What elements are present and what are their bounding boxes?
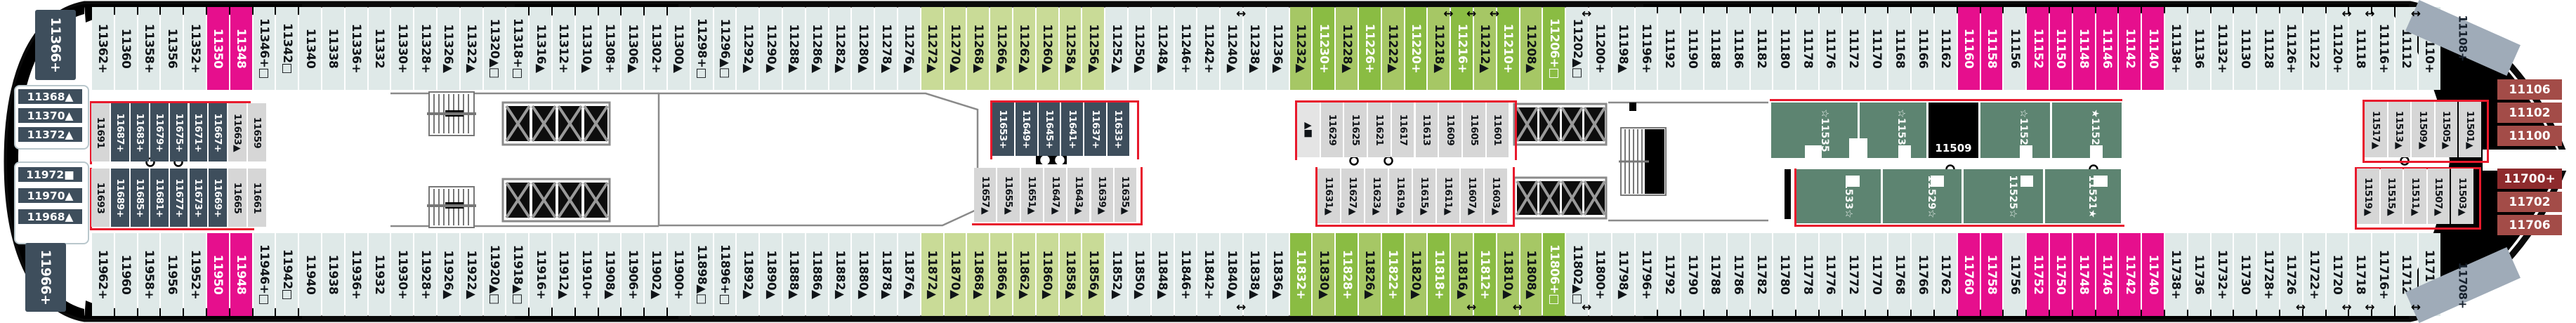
connecting-cabins-icon: ↔	[1513, 302, 1523, 314]
cabin-11870[interactable]: 11870▲	[945, 233, 966, 316]
cabin-11798[interactable]: 11798▲	[1612, 233, 1634, 316]
cabin-11158[interactable]: 11158	[1981, 7, 2003, 90]
connecting-cabins-icon: ↔	[1466, 302, 1476, 314]
cabin-11892[interactable]: 11892▲	[737, 233, 758, 316]
cabin-11348[interactable]: 11348	[230, 7, 252, 90]
cabin-11926[interactable]: 11926▲	[438, 233, 459, 316]
cabin-11641[interactable]: 11641+	[1061, 103, 1083, 156]
cabin-11511[interactable]: 11511▲	[2404, 169, 2426, 224]
cabin-11685[interactable]: 11685+	[131, 169, 149, 227]
cabin-11675[interactable]: 11675+	[170, 103, 188, 161]
cabin-11679[interactable]: 11679+	[150, 103, 169, 161]
cabin-11880[interactable]: 11880▲	[852, 233, 874, 316]
cabin-11278[interactable]: 11278▲	[875, 7, 897, 90]
cabin-11605[interactable]: 11605	[1463, 103, 1485, 157]
cabin-11370[interactable]: 11370▲	[18, 108, 82, 123]
cabin-11146[interactable]: 11146	[2096, 7, 2118, 90]
cabin-11286[interactable]: 11286▲	[806, 7, 828, 90]
cabin-11635[interactable]: 11635▲	[1115, 168, 1136, 222]
cabin-11768[interactable]: 11768	[1888, 233, 1910, 316]
cabin-11918[interactable]: 11918▲□	[506, 233, 528, 316]
cabin-11166[interactable]: 11166	[1912, 7, 1933, 90]
cabin-11613[interactable]: 11613	[1416, 103, 1438, 157]
cabin-11190[interactable]: 11190	[1681, 7, 1703, 90]
cabin-11170[interactable]: 11170	[1866, 7, 1888, 90]
cabin-11266[interactable]: 11266▲	[990, 7, 1012, 90]
connecting-cabins-icon: ↔	[1236, 8, 1246, 20]
cabin-11182[interactable]: 11182	[1751, 7, 1773, 90]
cabin-11836[interactable]: 11836▲	[1267, 233, 1289, 316]
cabin-11946[interactable]: 11946+□	[254, 233, 275, 316]
cabin-11617[interactable]: 11617	[1392, 103, 1414, 157]
cabin-11228[interactable]: 11228▲	[1336, 7, 1358, 90]
cabin-11160[interactable]: 11160	[1958, 7, 1980, 90]
cabin-11732[interactable]: 11732+	[2212, 233, 2233, 316]
cabin-11619[interactable]: 11619▲	[1389, 169, 1412, 223]
cabin-11625[interactable]: 11625	[1344, 103, 1367, 157]
cabin-11738[interactable]: 11738+	[2165, 233, 2187, 316]
suite-11529[interactable]: 11529☆	[1883, 169, 1961, 223]
connecting-cabins-icon: ↔	[1582, 302, 1591, 314]
cabin-11615[interactable]: 11615▲	[1413, 169, 1435, 223]
cabin-11260[interactable]: 11260▲	[1037, 7, 1058, 90]
cabin-11669[interactable]: 11669+	[209, 169, 227, 227]
cabin-11282[interactable]: 11282▲	[829, 7, 851, 90]
cabin-11168[interactable]: 11168	[1888, 7, 1910, 90]
cabin-11878[interactable]: 11878▲	[875, 233, 897, 316]
cabin-11842[interactable]: 11842+	[1197, 233, 1219, 316]
cabin-11786[interactable]: 11786	[1728, 233, 1749, 316]
cabin-11130[interactable]: 11130	[2234, 7, 2256, 90]
suite-11531[interactable]: ☆11531	[1860, 103, 1926, 158]
cabin-11649[interactable]: 11649+	[1016, 103, 1037, 156]
cabin-11326[interactable]: 11326▲	[438, 7, 459, 90]
cabin-11922[interactable]: 11922▲	[461, 233, 482, 316]
cabin-11846[interactable]: 11846+	[1175, 233, 1197, 316]
cabin-11226[interactable]: 11226+	[1359, 7, 1381, 90]
cabin-11603[interactable]: 11603▲	[1485, 169, 1507, 223]
cabin-11136[interactable]: 11136	[2188, 7, 2210, 90]
cabin-11372[interactable]: 11372▲	[18, 127, 82, 142]
suite-11527[interactable]: ☆11527	[1980, 103, 2050, 158]
cabin-11637[interactable]: 11637+	[1084, 103, 1106, 156]
cabin-11858[interactable]: 11858▲	[1060, 233, 1082, 316]
cabin-11950[interactable]: 11950	[207, 233, 229, 316]
connecting-cabins-icon: ↔	[2411, 302, 2421, 314]
cabin-11808[interactable]: 11808▲	[1520, 233, 1542, 316]
elevator-bank-icon	[1514, 178, 1606, 218]
cabin-11760[interactable]: 11760	[1958, 233, 1980, 316]
cabin-11501[interactable]: 11501▲	[2459, 102, 2481, 157]
cabin-11252[interactable]: 11252▲	[1105, 7, 1127, 90]
cabin-11100[interactable]: 11100	[2497, 126, 2562, 146]
cabin-11172[interactable]: 11172	[1843, 7, 1865, 90]
cabin-11300[interactable]: 11300▲	[668, 7, 690, 90]
cabin-11366[interactable]: 11366+	[35, 10, 76, 80]
cabin-11683[interactable]: 11683+	[131, 103, 149, 161]
cabin-11916[interactable]: 11916+	[530, 233, 551, 316]
cabin-11766[interactable]: 11766	[1912, 233, 1933, 316]
cabin-11208[interactable]: 11208▲	[1520, 7, 1542, 90]
cabin-11866[interactable]: 11866▲	[990, 233, 1012, 316]
cabin-11270[interactable]: 11270▲	[945, 7, 966, 90]
cabin-11890[interactable]: 11890▲	[760, 233, 782, 316]
cabin-11700[interactable]: 11700+	[2497, 169, 2562, 189]
cabin-11962[interactable]: 11962+	[92, 233, 114, 316]
cabin-11960[interactable]: 11960	[115, 233, 137, 316]
cabin-11788[interactable]: 11788	[1704, 233, 1726, 316]
cabin-11138[interactable]: 11138+	[2165, 7, 2187, 90]
cabin-11702[interactable]: 11702	[2497, 192, 2562, 212]
cabin-11748[interactable]: 11748	[2073, 233, 2095, 316]
cabin-11132[interactable]: 11132+	[2212, 7, 2233, 90]
cabin-11762[interactable]: 11762	[1935, 233, 1957, 316]
cabin-11756[interactable]: 11756	[2004, 233, 2025, 316]
cabin-11178[interactable]: 11178	[1796, 7, 1818, 90]
cabin-11930[interactable]: 11930+	[391, 233, 413, 316]
connecting-cabins-icon: ↔	[1582, 8, 1591, 20]
cabin-11645[interactable]: 11645+	[1039, 103, 1060, 156]
cabin-11687[interactable]: 11687+	[111, 103, 129, 161]
connecting-cabins-icon: ↔	[1236, 302, 1246, 314]
cabin-11659[interactable]: 11659	[248, 103, 266, 161]
cabin-11778[interactable]: 11778	[1796, 233, 1818, 316]
connecting-cabins-icon: ↔	[2411, 8, 2421, 20]
stairs-icon	[427, 92, 476, 136]
cabin-11342[interactable]: 11342□	[276, 7, 298, 90]
cabin-11352[interactable]: 11352+	[184, 7, 206, 90]
cabin-11896[interactable]: 11896+□	[714, 233, 736, 316]
cabin-11330[interactable]: 11330+	[391, 7, 413, 90]
cabin-11948[interactable]: 11948	[230, 233, 252, 316]
cabin-11667[interactable]: 11667+	[209, 103, 227, 161]
cabin-11222[interactable]: 11222▲	[1382, 7, 1404, 90]
cabin-11230[interactable]: 11230+	[1313, 7, 1334, 90]
cabin-11671[interactable]: 11671+	[190, 103, 208, 161]
cabin-11220[interactable]: 11220+	[1405, 7, 1427, 90]
cabin-11236[interactable]: 11236▲	[1267, 7, 1289, 90]
cabin-11519[interactable]: 11519▲	[2357, 169, 2379, 224]
cabin-11280[interactable]: 11280▲	[852, 7, 874, 90]
cabin-11746[interactable]: 11746	[2096, 233, 2118, 316]
cabin-11730[interactable]: 11730	[2234, 233, 2256, 316]
cabin-11776[interactable]: 11776	[1820, 233, 1841, 316]
connecting-cabins-icon: ↔	[1466, 8, 1476, 20]
cabin-11828[interactable]: 11828+	[1336, 233, 1358, 316]
stairs-icon	[1619, 128, 1666, 195]
suite-balcony-notch	[1898, 145, 1911, 164]
suite-balcony-notch	[2020, 176, 2033, 187]
cabin-11507[interactable]: 11507▲	[2428, 169, 2450, 224]
cabin-11308[interactable]: 11308+	[599, 7, 621, 90]
cabin-11296[interactable]: 11296▲□	[714, 7, 736, 90]
cabin-11318[interactable]: 11318+□	[506, 7, 528, 90]
cabin-11246[interactable]: 11246+	[1175, 7, 1197, 90]
cabin-11290[interactable]: 11290▲	[760, 7, 782, 90]
cabin-11758[interactable]: 11758	[1981, 233, 2003, 316]
cabin-11248[interactable]: 11248▲	[1152, 7, 1174, 90]
cabin-11673[interactable]: 11673+	[190, 169, 208, 227]
cabin-11338[interactable]: 11338	[322, 7, 344, 90]
cabin-11722[interactable]: 11722+	[2304, 233, 2325, 316]
cabin-11356[interactable]: 11356	[161, 7, 183, 90]
cabin-11515[interactable]: 11515▲	[2381, 169, 2403, 224]
cabin-11928[interactable]: 11928+	[414, 233, 436, 316]
cabin-11653[interactable]: 11653+	[992, 103, 1014, 156]
cabin-11908[interactable]: 11908▲	[599, 233, 621, 316]
cabin-11912[interactable]: 11912▲	[553, 233, 574, 316]
cabin-11968[interactable]: 11968▲	[18, 209, 82, 224]
cabin-11806[interactable]: 11806+□	[1543, 233, 1565, 316]
cabin-11362[interactable]: 11362+	[92, 7, 114, 90]
cabin-11621[interactable]: 11621	[1368, 103, 1391, 157]
cabin-11368[interactable]: 11368▲	[18, 89, 82, 104]
cabin-11200[interactable]: 11200+	[1589, 7, 1611, 90]
cabin-11142[interactable]: 11142	[2119, 7, 2141, 90]
cabin-11358[interactable]: 11358+	[138, 7, 160, 90]
cabin-11268[interactable]: 11268▲	[967, 7, 989, 90]
cabin-11740[interactable]: 11740	[2142, 233, 2164, 316]
cabin-11122[interactable]: 11122	[2304, 7, 2325, 90]
suite-11523[interactable]: ★11523	[2052, 103, 2122, 158]
cabin-11148[interactable]: 11148	[2073, 7, 2095, 90]
cabin-11302[interactable]: 11302+	[645, 7, 666, 90]
cabin-11681[interactable]: 11681+	[150, 169, 169, 227]
cabin-11250[interactable]: 11250▲	[1129, 7, 1150, 90]
cabin-11938[interactable]: 11938	[322, 233, 344, 316]
cabin-11316[interactable]: 11316▲	[530, 7, 551, 90]
cabin-11196[interactable]: 11196+	[1636, 7, 1657, 90]
cabin-11232[interactable]: 11232▲	[1290, 7, 1312, 90]
cabin-11328[interactable]: 11328+	[414, 7, 436, 90]
cabin-11627[interactable]: 11627▲	[1341, 169, 1364, 223]
cabin-11152[interactable]: 11152	[2027, 7, 2049, 90]
suite-balcony-notch	[1805, 145, 1822, 164]
cabin-11198[interactable]: 11198▲	[1612, 7, 1634, 90]
cabin-11936[interactable]: 11936+	[346, 233, 367, 316]
cabin-11972[interactable]: 11972■	[18, 167, 82, 182]
cabin-11838[interactable]: 11838▲	[1244, 233, 1266, 316]
cabin-11176[interactable]: 11176	[1820, 7, 1841, 90]
cabin-11886[interactable]: 11886▲	[806, 233, 828, 316]
cabin-11772[interactable]: 11772	[1843, 233, 1865, 316]
cabin-11629[interactable]: 11629	[1321, 103, 1343, 157]
cabin-11820[interactable]: 11820▲	[1405, 233, 1427, 316]
connecting-cabins-icon: ↔	[2341, 8, 2351, 20]
cabin-marker: ▲■	[1297, 103, 1320, 157]
cabin-11623[interactable]: 11623▲	[1365, 169, 1388, 223]
cabin-11970[interactable]: 11970▲	[18, 188, 82, 203]
cabin-11186[interactable]: 11186	[1728, 7, 1749, 90]
connecting-cabins-icon: ↔	[1443, 8, 1453, 20]
open-deck-area	[659, 93, 978, 225]
cabin-11856[interactable]: 11856▲	[1082, 233, 1104, 316]
cabin-11657[interactable]: 11657▲	[974, 168, 996, 222]
cabin-11661[interactable]: 11661	[248, 169, 266, 227]
cabin-11910[interactable]: 11910+	[576, 233, 598, 316]
cabin-11150[interactable]: 11150	[2050, 7, 2072, 90]
cabin-11900[interactable]: 11900+	[668, 233, 690, 316]
cabin-11792[interactable]: 11792	[1658, 233, 1680, 316]
cabin-11940[interactable]: 11940	[299, 233, 321, 316]
cabin-11312[interactable]: 11312+	[553, 7, 574, 90]
cabin-11790[interactable]: 11790	[1681, 233, 1703, 316]
cabin-11716[interactable]: 11716+	[2372, 233, 2394, 316]
cabin-11647[interactable]: 11647▲	[1044, 168, 1066, 222]
cabin-11665[interactable]: 11665	[228, 169, 247, 227]
cabin-11509-interior[interactable]: 11509	[1928, 103, 1978, 158]
cabin-11920[interactable]: 11920▲□	[484, 233, 506, 316]
cabin-11611[interactable]: 11611▲	[1437, 169, 1459, 223]
cabin-11210[interactable]: 11210+	[1497, 7, 1519, 90]
cabin-11932[interactable]: 11932	[369, 233, 390, 316]
cabin-11292[interactable]: 11292▲	[737, 7, 758, 90]
cabin-11800[interactable]: 11800+	[1589, 233, 1611, 316]
cabin-11826[interactable]: 11826▲	[1359, 233, 1381, 316]
cabin-11607[interactable]: 11607▲	[1461, 169, 1483, 223]
cabin-11256[interactable]: 11256▲	[1082, 7, 1104, 90]
cabin-11288[interactable]: 11288▲	[783, 7, 805, 90]
cabin-11126[interactable]: 11126+	[2280, 7, 2302, 90]
cabin-11958[interactable]: 11958+	[138, 233, 160, 316]
cabin-11503[interactable]: 11503▲	[2451, 169, 2473, 224]
cabin-11752[interactable]: 11752	[2027, 233, 2049, 316]
cabin-11651[interactable]: 11651▲	[1021, 168, 1043, 222]
cabin-11509[interactable]: 11509▲	[2412, 102, 2434, 157]
cabin-11952[interactable]: 11952+	[184, 233, 206, 316]
cabin-11796[interactable]: 11796+	[1636, 233, 1657, 316]
cabin-11848[interactable]: 11848▲	[1152, 233, 1174, 316]
cabin-11180[interactable]: 11180	[1773, 7, 1795, 90]
cabin-11643[interactable]: 11643▲	[1067, 168, 1089, 222]
cabin-11310[interactable]: 11310▲	[576, 7, 598, 90]
cabin-11876[interactable]: 11876▲	[898, 233, 920, 316]
cabin-11639[interactable]: 11639▲	[1091, 168, 1113, 222]
cabin-11513[interactable]: 11513▲	[2388, 102, 2411, 157]
suite-balcony-notch	[1849, 138, 1867, 164]
cabin-11868[interactable]: 11868▲	[967, 233, 989, 316]
cabin-11336[interactable]: 11336+	[346, 7, 367, 90]
cabin-11689[interactable]: 11689+	[111, 169, 129, 227]
cabin-11192[interactable]: 11192	[1658, 7, 1680, 90]
suite-11533[interactable]: 11533☆	[1796, 169, 1881, 223]
elevator-bank-icon	[503, 179, 610, 221]
cabin-11128[interactable]: 11128	[2257, 7, 2279, 90]
cabin-11360[interactable]: 11360	[115, 7, 137, 90]
cabin-11320[interactable]: 11320▲□	[484, 7, 506, 90]
cabin-11188[interactable]: 11188	[1704, 7, 1726, 90]
cabin-11276[interactable]: 11276▲	[898, 7, 920, 90]
cabin-11116[interactable]: 11116+	[2372, 7, 2394, 90]
cabin-11860[interactable]: 11860▲	[1037, 233, 1058, 316]
cabin-11350[interactable]: 11350	[207, 7, 229, 90]
suite-balcony-notch	[2090, 145, 2103, 164]
cabin-11782[interactable]: 11782	[1751, 233, 1773, 316]
cabin-11242[interactable]: 11242+	[1197, 7, 1219, 90]
cabin-11346[interactable]: 11346+□	[254, 7, 275, 90]
cabin-11812[interactable]: 11812+	[1474, 233, 1496, 316]
cabin-11693[interactable]: 11693	[91, 169, 110, 227]
cabin-11736[interactable]: 11736	[2188, 233, 2210, 316]
cabin-11906[interactable]: 11906+	[622, 233, 643, 316]
deck-plan: 11509 11108+ 11708+ 11366+ 11966+ 11362+…	[0, 0, 2576, 323]
cabin-11850[interactable]: 11850▲	[1129, 233, 1150, 316]
cabin-11206[interactable]: 11206+□	[1543, 7, 1565, 90]
connecting-cabins-icon: ↔	[2365, 8, 2374, 20]
connecting-cabins-icon: ↔	[2296, 302, 2306, 314]
cabin-11742[interactable]: 11742	[2119, 233, 2141, 316]
cabin-11505[interactable]: 11505▲	[2436, 102, 2458, 157]
cabin-11852[interactable]: 11852▲	[1105, 233, 1127, 316]
cabin-11882[interactable]: 11882▲	[829, 233, 851, 316]
suite-balcony-notch	[2094, 176, 2108, 187]
cabin-11633[interactable]: 11633+	[1108, 103, 1129, 156]
cabin-11655[interactable]: 11655▲	[997, 168, 1019, 222]
suite-balcony-notch	[1931, 176, 1944, 187]
cabin-11780[interactable]: 11780	[1773, 233, 1795, 316]
stairs-icon	[427, 187, 476, 228]
cabin-11706[interactable]: 11706	[2497, 215, 2562, 235]
cabin-11272[interactable]: 11272▲	[921, 7, 943, 90]
cabin-11140[interactable]: 11140	[2142, 7, 2164, 90]
cabin-11631[interactable]: 11631▲	[1317, 169, 1340, 223]
cabin-11340[interactable]: 11340	[299, 7, 321, 90]
cabin-11822[interactable]: 11822+	[1382, 233, 1404, 316]
connecting-cabins-icon: ↔	[1490, 8, 1499, 20]
cabin-11966[interactable]: 11966+	[25, 243, 66, 312]
cabin-11663[interactable]: 11663▲	[228, 103, 247, 161]
connecting-cabins-icon: ↔	[2365, 302, 2374, 314]
cabin-11332[interactable]: 11332	[369, 7, 390, 90]
cabin-11262[interactable]: 11262▲	[1013, 7, 1035, 90]
cabin-11298[interactable]: 11298+□	[691, 7, 713, 90]
cabin-11306[interactable]: 11306▲	[622, 7, 643, 90]
cabin-11162[interactable]: 11162	[1935, 7, 1957, 90]
cabin-11862[interactable]: 11862▲	[1013, 233, 1035, 316]
cabin-11238[interactable]: 11238▲	[1244, 7, 1266, 90]
cabin-11601[interactable]: 11601	[1487, 103, 1509, 157]
cabin-11102[interactable]: 11102	[2497, 103, 2562, 123]
cabin-11728[interactable]: 11728+	[2257, 233, 2279, 316]
cabin-11956[interactable]: 11956	[161, 233, 183, 316]
cabin-11888[interactable]: 11888▲	[783, 233, 805, 316]
cabin-11750[interactable]: 11750	[2050, 233, 2072, 316]
elevator-bank-icon	[503, 103, 610, 145]
cabin-11830[interactable]: 11830▲	[1313, 233, 1334, 316]
suite-balcony-notch	[1846, 176, 1860, 187]
cabin-11322[interactable]: 11322▲	[461, 7, 482, 90]
cabin-11609[interactable]: 11609	[1439, 103, 1461, 157]
cabin-11942[interactable]: 11942□	[276, 233, 298, 316]
cabin-11691[interactable]: 11691	[91, 103, 110, 161]
cabin-11818[interactable]: 11818+	[1428, 233, 1450, 316]
suite-balcony-notch	[2020, 145, 2032, 164]
cabin-11902[interactable]: 11902▲	[645, 233, 666, 316]
suite-11521[interactable]: 11521★	[2045, 169, 2121, 223]
elevator-bank-icon	[1514, 104, 1606, 145]
cabin-11770[interactable]: 11770	[1866, 233, 1888, 316]
connecting-cabins-icon: ↔	[2341, 302, 2351, 314]
cabin-11832[interactable]: 11832+	[1290, 233, 1312, 316]
cabin-11258[interactable]: 11258▲	[1060, 7, 1082, 90]
cabin-11898[interactable]: 11898▲□	[691, 233, 713, 316]
cabin-11106[interactable]: 11106	[2497, 79, 2562, 100]
cabin-11517[interactable]: 11517▲	[2365, 102, 2387, 157]
cabin-11872[interactable]: 11872▲	[921, 233, 943, 316]
cabin-11156[interactable]: 11156	[2004, 7, 2025, 90]
cabin-11677[interactable]: 11677+	[170, 169, 188, 227]
